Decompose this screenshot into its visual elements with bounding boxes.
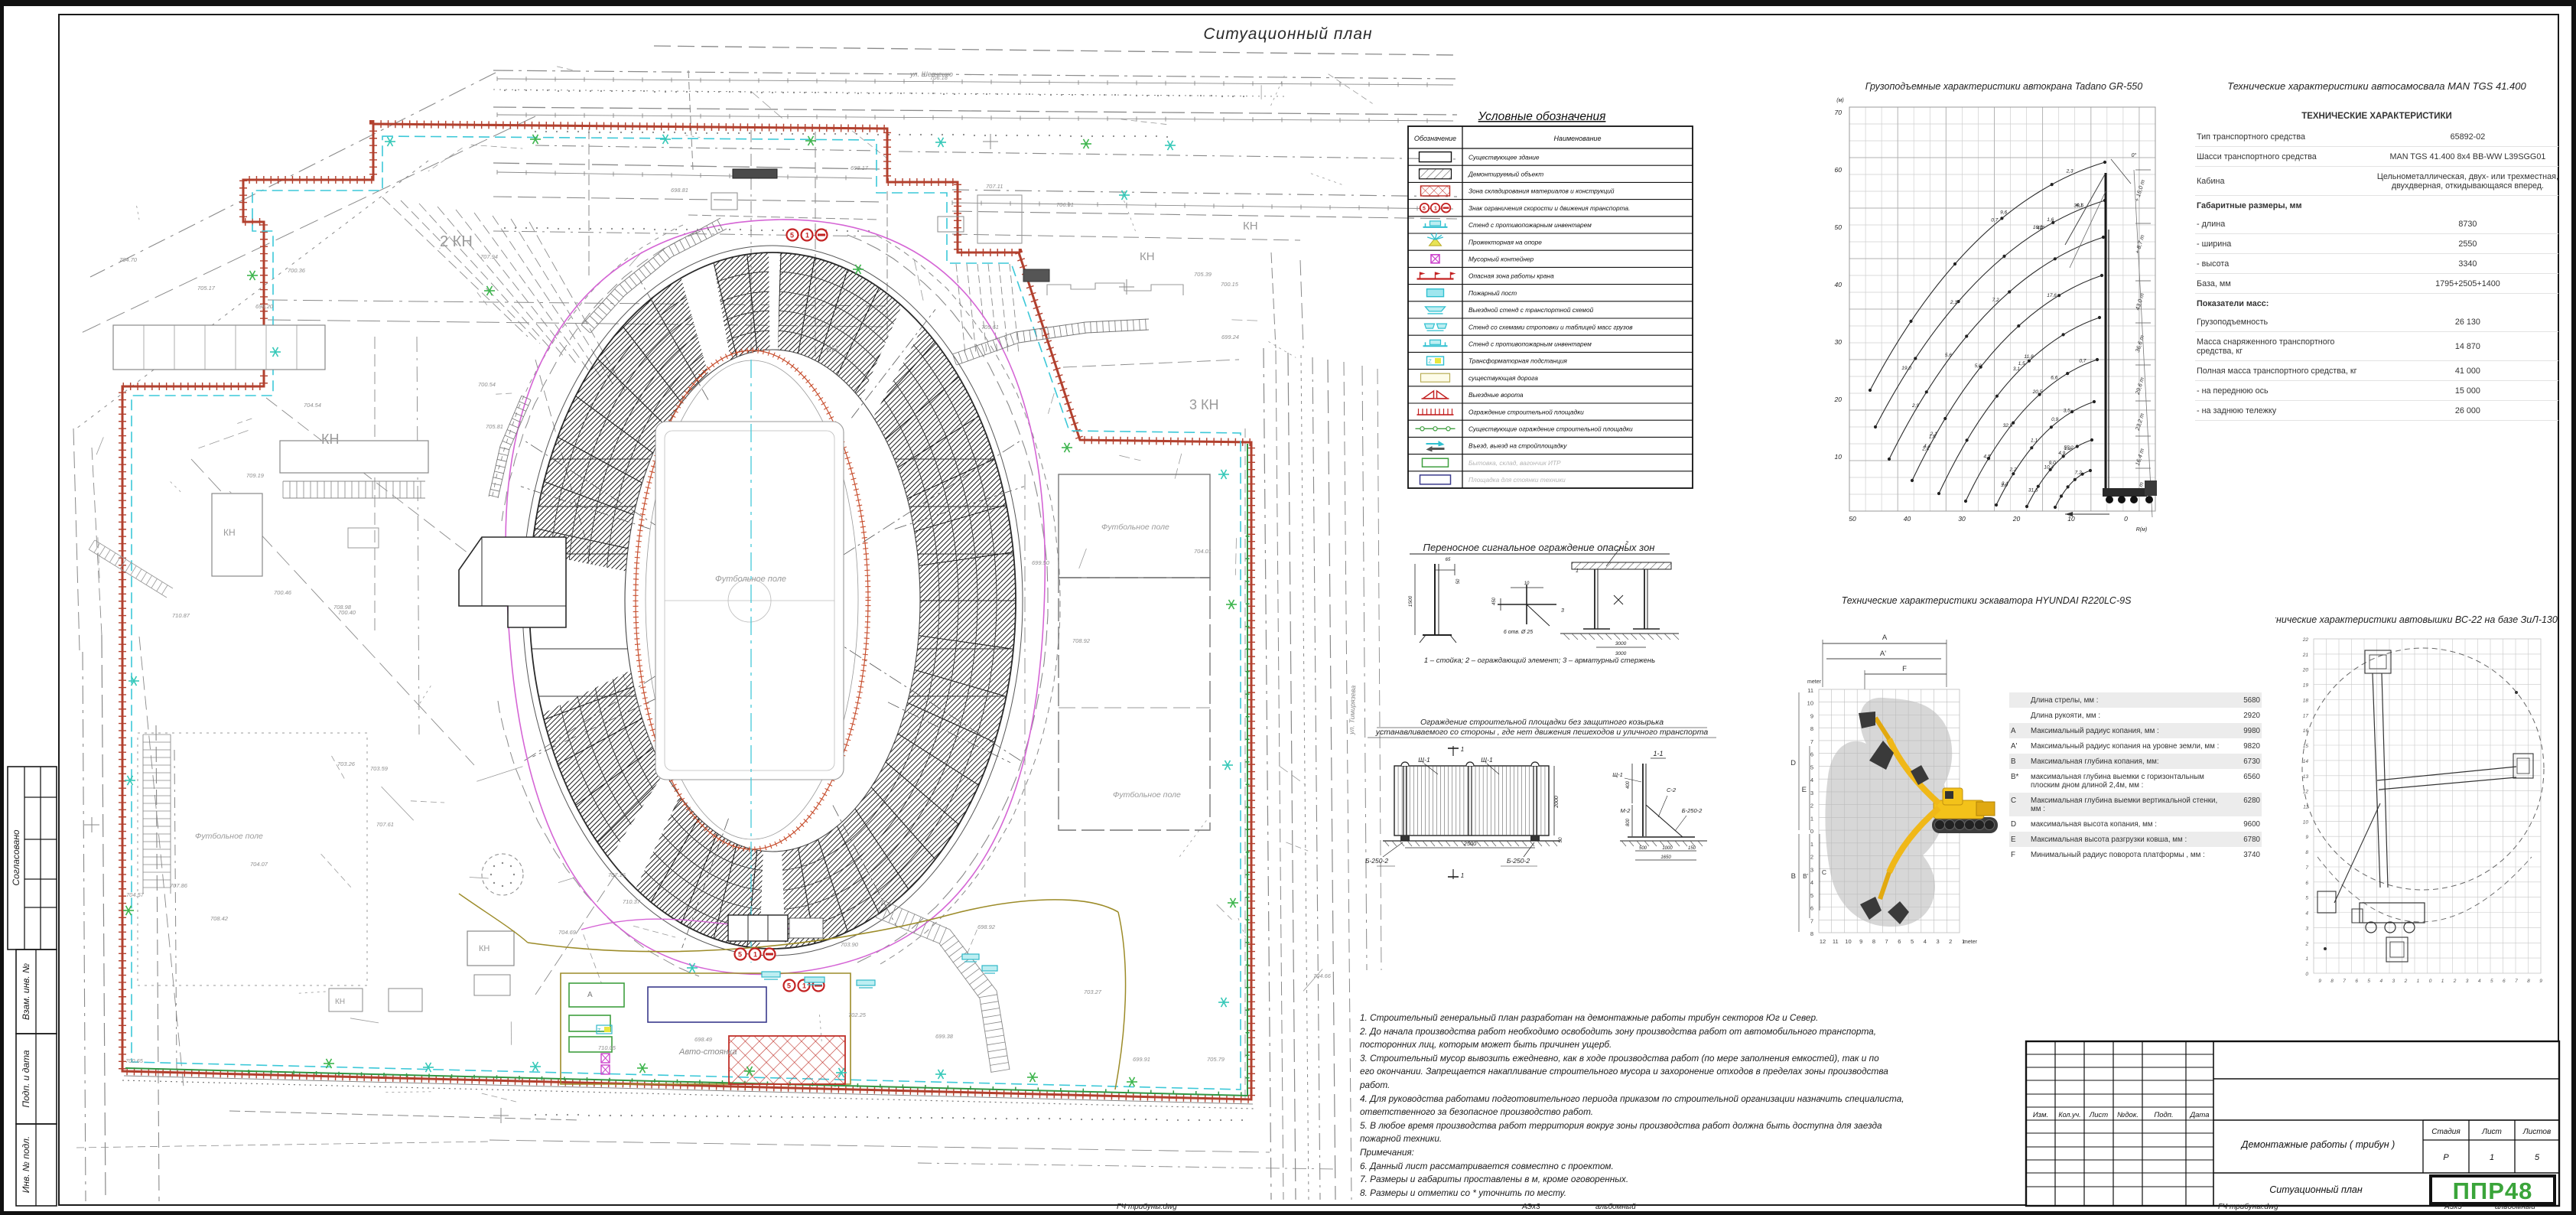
svg-text:699.91: 699.91: [1133, 1056, 1150, 1063]
svg-text:50: 50: [1456, 578, 1461, 584]
svg-text:705.17: 705.17: [197, 285, 216, 292]
svg-text:КН: КН: [335, 998, 345, 1006]
svg-text:40°: 40°: [2037, 225, 2045, 231]
svg-text:1 – стойка; 2 – ограждающий эл: 1 – стойка; 2 – ограждающий элемент; 3 –…: [1424, 656, 1655, 665]
svg-text:9: 9: [2539, 979, 2542, 984]
svg-text:Дата: Дата: [2189, 1111, 2209, 1119]
svg-text:КН: КН: [1243, 220, 1258, 233]
svg-text:708.98: 708.98: [333, 604, 352, 611]
svg-text:699.38: 699.38: [935, 1033, 954, 1040]
svg-text:М-2: М-2: [1621, 807, 1631, 814]
svg-text:C: C: [1822, 868, 1826, 876]
svg-text:3: 3: [1936, 938, 1939, 945]
svg-text:65: 65: [1446, 558, 1451, 562]
svg-text:8: 8: [1810, 930, 1813, 937]
svg-text:707.11: 707.11: [986, 183, 1003, 190]
svg-text:Знак ограничения скорости и дв: Знак ограничения скорости и движения тра…: [1469, 204, 1630, 212]
svg-text:22: 22: [2302, 637, 2309, 643]
svg-text:699.50: 699.50: [1032, 559, 1050, 566]
svg-text:Б-250-2: Б-250-2: [1507, 857, 1530, 865]
svg-text:2,9: 2,9: [1911, 403, 1919, 409]
svg-text:A': A': [1880, 650, 1886, 658]
svg-text:2 КН: 2 КН: [440, 233, 473, 250]
svg-text:703.59: 703.59: [370, 765, 389, 772]
svg-text:2: 2: [2304, 941, 2308, 946]
svg-text:Стенд с противопожарным инвент: Стенд с противопожарным инвентарем: [1469, 340, 1592, 348]
svg-text:698.49: 698.49: [694, 1036, 713, 1043]
svg-text:4,4: 4,4: [1924, 444, 1930, 449]
svg-text:11,8: 11,8: [2024, 354, 2034, 360]
svg-text:4: 4: [1924, 938, 1927, 945]
svg-text:Въезд, выезд на стройплощадку: Въезд, выезд на стройплощадку: [1469, 442, 1567, 450]
svg-text:5: 5: [1911, 938, 1914, 945]
svg-text:+ 8,7 m: + 8,7 m: [2134, 234, 2146, 255]
svg-text:7: 7: [1810, 738, 1813, 745]
svg-text:Лист: Лист: [2089, 1111, 2109, 1119]
svg-text:Прожекторная на опоре: Прожекторная на опоре: [1469, 238, 1542, 246]
svg-text:10: 10: [2067, 515, 2075, 523]
svg-text:39,5: 39,5: [2073, 204, 2083, 209]
svg-text:Переносное сигнальное огражден: Переносное сигнальное ограждение опасных…: [1423, 542, 1655, 553]
svg-text:20: 20: [2302, 668, 2309, 673]
svg-text:704.01: 704.01: [1194, 548, 1212, 555]
svg-text:20,5: 20,5: [2032, 389, 2043, 395]
svg-text:КН: КН: [479, 944, 490, 953]
svg-text:Зона складирования материалов: Зона складирования материалов и конструк…: [1469, 187, 1615, 195]
svg-text:5,0: 5,0: [1975, 363, 1982, 369]
svg-text:3: 3: [2305, 926, 2308, 931]
svg-text:500: 500: [1639, 846, 1647, 851]
svg-text:70: 70: [1835, 109, 1843, 116]
svg-text:1000: 1000: [1662, 846, 1673, 851]
svg-text:Авто-стоянка: Авто-стоянка: [678, 1047, 737, 1057]
svg-text:1: 1: [805, 232, 809, 239]
svg-text:№док.: №док.: [2117, 1111, 2139, 1119]
svg-text:1,8: 1,8: [1929, 434, 1936, 439]
svg-text:0: 0: [1810, 828, 1813, 835]
svg-text:1: 1: [1810, 815, 1813, 822]
svg-text:Наименование: Наименование: [1553, 135, 1601, 142]
svg-text:Выездной стенд с транспортной: Выездной стенд с транспортной схемой: [1469, 306, 1594, 314]
svg-text:705.79: 705.79: [1207, 1056, 1225, 1063]
svg-text:2: 2: [1949, 938, 1952, 945]
svg-text:4: 4: [2478, 979, 2481, 984]
svg-text:Ограждение строительной площад: Ограждение строительной площадки: [1469, 408, 1584, 415]
svg-text:Изм.: Изм.: [2033, 1111, 2048, 1119]
svg-text:А: А: [587, 991, 593, 999]
svg-text:30: 30: [1958, 515, 1966, 523]
svg-text:Ограждение строительной площад: Ограждение строительной площадки без защ…: [1420, 718, 1664, 727]
svg-text:3: 3: [2466, 979, 2469, 984]
svg-text:ул. Шевченко: ул. Шевченко: [909, 70, 953, 78]
svg-text:B': B': [1803, 873, 1808, 880]
svg-text:16,4 m: 16,4 m: [2134, 448, 2145, 467]
svg-text:5: 5: [2367, 979, 2370, 984]
svg-text:703.90: 703.90: [841, 941, 859, 948]
svg-text:17,6: 17,6: [2047, 293, 2057, 298]
svg-text:1500: 1500: [1408, 595, 1413, 607]
svg-text:КН: КН: [223, 527, 236, 538]
svg-text:2,2: 2,2: [2009, 467, 2017, 472]
svg-text:8: 8: [1872, 938, 1875, 945]
svg-text:0: 0: [2429, 979, 2432, 984]
svg-text:6 отв. Ø 25: 6 отв. Ø 25: [1504, 630, 1533, 635]
svg-text:19: 19: [2303, 683, 2309, 689]
svg-text:Футбольное поле: Футбольное поле: [1101, 523, 1169, 532]
svg-text:4: 4: [2305, 911, 2308, 917]
svg-text:Стенд со схемами строповки и т: Стенд со схемами строповки и таблицей ма…: [1469, 323, 1633, 331]
svg-text:5: 5: [2535, 1153, 2540, 1162]
svg-text:18: 18: [2303, 699, 2309, 704]
svg-text:400: 400: [1626, 780, 1631, 789]
svg-text:450: 450: [1492, 597, 1497, 605]
svg-text:5: 5: [790, 232, 794, 239]
svg-text:0,7: 0,7: [2079, 359, 2086, 364]
svg-text:40: 40: [1835, 281, 1843, 288]
svg-text:D: D: [1791, 759, 1796, 767]
svg-text:8: 8: [1810, 725, 1813, 732]
svg-text:709.19: 709.19: [246, 472, 265, 479]
svg-text:R(м): R(м): [2136, 527, 2148, 533]
svg-text:Условные обозначения: Условные обозначения: [1478, 110, 1606, 123]
svg-text:Демонтируемый объект: Демонтируемый объект: [1468, 171, 1543, 178]
svg-text:meter: meter: [1807, 679, 1822, 685]
svg-text:Технические характеристики авт: Технические характеристики автовышки ВС-…: [2275, 614, 2558, 625]
svg-text:5: 5: [1810, 892, 1813, 899]
svg-text:Стенд с противопожарным инвент: Стенд с противопожарным инвентарем: [1469, 221, 1592, 229]
svg-text:Щ-1: Щ-1: [1418, 756, 1430, 764]
svg-text:708.42: 708.42: [210, 915, 229, 922]
svg-text:710.87: 710.87: [172, 612, 190, 619]
svg-text:10: 10: [1807, 700, 1813, 707]
svg-text:meter: meter: [1963, 940, 1978, 945]
svg-text:704.70: 704.70: [119, 256, 138, 263]
svg-text:700.46: 700.46: [274, 589, 292, 596]
svg-text:708.92: 708.92: [1072, 637, 1091, 644]
svg-text:КН: КН: [1140, 250, 1155, 263]
svg-text:700.36: 700.36: [288, 267, 306, 274]
svg-text:2: 2: [2404, 979, 2408, 984]
svg-text:КН: КН: [826, 344, 838, 354]
svg-text:6,6: 6,6: [2051, 376, 2057, 381]
svg-text:698.20: 698.20: [255, 303, 274, 310]
svg-text:14: 14: [2303, 759, 2309, 764]
svg-text:50: 50: [1835, 223, 1843, 231]
svg-text:3,5: 3,5: [2064, 409, 2070, 414]
svg-text:5: 5: [1423, 207, 1426, 212]
svg-text:3: 3: [1810, 790, 1813, 796]
svg-text:Существующие ограждение строит: Существующие ограждение строительной пло…: [1469, 425, 1633, 433]
svg-text:2: 2: [1810, 803, 1813, 809]
svg-text:12: 12: [2303, 790, 2309, 795]
svg-text:12: 12: [1820, 938, 1826, 945]
svg-text:5,6: 5,6: [1945, 353, 1952, 358]
svg-text:F: F: [1902, 665, 1907, 673]
svg-text:3000: 3000: [1615, 641, 1627, 647]
svg-text:23,2 m: 23,2 m: [2134, 412, 2146, 432]
svg-text:9,6: 9,6: [2000, 210, 2007, 216]
svg-text:700.54: 700.54: [478, 381, 496, 388]
svg-text:Б-250-2: Б-250-2: [1365, 857, 1388, 865]
svg-text:699.24: 699.24: [1221, 334, 1239, 340]
svg-text:2000: 2000: [1554, 796, 1560, 809]
svg-text:1: 1: [1461, 872, 1464, 879]
svg-text:700.65: 700.65: [125, 1057, 144, 1064]
svg-text:Мусорный контейнер: Мусорный контейнер: [1469, 256, 1534, 263]
svg-text:B: B: [1791, 872, 1796, 881]
svg-text:0: 0: [2305, 972, 2308, 977]
svg-text:7: 7: [1810, 917, 1813, 924]
svg-text:2: 2: [2453, 979, 2457, 984]
svg-text:Щ-1: Щ-1: [1612, 771, 1623, 778]
svg-text:Лист: Лист: [2481, 1128, 2502, 1136]
svg-text:800: 800: [1626, 818, 1631, 826]
svg-text:707.94: 707.94: [480, 253, 498, 260]
svg-text:1: 1: [2417, 979, 2420, 984]
svg-text:7: 7: [2515, 979, 2518, 984]
svg-text:709.61: 709.61: [981, 324, 999, 331]
svg-text:6: 6: [2305, 881, 2308, 886]
svg-text:Существующее здание: Существующее здание: [1469, 153, 1540, 161]
svg-text:4: 4: [2379, 979, 2382, 984]
svg-text:существующая дорога: существующая дорога: [1469, 374, 1538, 382]
svg-text:20: 20: [1834, 396, 1843, 403]
svg-text:6: 6: [1810, 905, 1813, 912]
svg-text:10: 10: [2303, 819, 2309, 825]
svg-text:Подп.: Подп.: [2154, 1111, 2173, 1119]
svg-text:1,1: 1,1: [2031, 438, 2038, 443]
svg-text:6: 6: [1898, 938, 1901, 945]
svg-text:Р: Р: [2443, 1153, 2449, 1162]
svg-text:Демонтажные работы ( трибун ): Демонтажные работы ( трибун ): [2240, 1139, 2395, 1150]
svg-text:704.54: 704.54: [304, 402, 321, 409]
svg-text:31,5: 31,5: [2028, 488, 2038, 493]
svg-text:60: 60: [1835, 166, 1843, 174]
svg-text:2: 2: [1810, 854, 1813, 861]
svg-text:10: 10: [1524, 581, 1530, 586]
svg-text:9: 9: [2318, 979, 2321, 984]
svg-text:1,6: 1,6: [2047, 217, 2054, 223]
svg-text:50: 50: [1558, 837, 1563, 843]
svg-text:3: 3: [1810, 866, 1813, 873]
svg-text:1: 1: [753, 951, 757, 959]
svg-text:10: 10: [1845, 938, 1851, 945]
svg-text:1: 1: [1810, 841, 1813, 848]
svg-text:Технические характеристики эск: Технические характеристики эскаватора HY…: [1842, 595, 2132, 606]
svg-text:707.16: 707.16: [608, 871, 626, 878]
svg-text:2: 2: [1625, 541, 1628, 546]
svg-text:9,0: 9,0: [2049, 461, 2056, 466]
svg-text:устанавливаемого со стороны ,: устанавливаемого со стороны , где нет дв…: [1375, 728, 1709, 737]
svg-text:Грузоподъемные характеристики: Грузоподъемные характеристики автокрана …: [1865, 81, 2142, 92]
svg-text:707.61: 707.61: [376, 821, 394, 828]
svg-text:703.26: 703.26: [337, 761, 356, 767]
svg-text:9: 9: [1810, 712, 1813, 719]
svg-text:11: 11: [1833, 938, 1839, 945]
svg-text:698.92: 698.92: [977, 923, 996, 930]
svg-text:7: 7: [2305, 865, 2308, 871]
svg-text:8: 8: [2330, 979, 2334, 984]
svg-text:30: 30: [1835, 338, 1843, 346]
svg-text:4: 4: [1810, 777, 1813, 783]
svg-text:150: 150: [1688, 846, 1696, 851]
svg-text:703.27: 703.27: [1084, 989, 1102, 995]
svg-text:Стадия: Стадия: [2431, 1128, 2461, 1136]
svg-text:7: 7: [1885, 938, 1888, 945]
svg-text:698.17: 698.17: [851, 164, 869, 171]
svg-text:705.39: 705.39: [1194, 271, 1212, 278]
svg-text:Выездные ворота: Выездные ворота: [1469, 391, 1524, 399]
svg-text:704.66: 704.66: [1313, 972, 1332, 979]
svg-text:2500: 2500: [1463, 840, 1478, 847]
svg-text:43,0 m: 43,0 m: [2134, 292, 2145, 311]
svg-text:1: 1: [1434, 207, 1437, 212]
svg-text:Обозначение: Обозначение: [1414, 135, 1456, 142]
svg-text:7,2: 7,2: [2075, 470, 2082, 475]
svg-text:Футбольное поле: Футбольное поле: [195, 832, 263, 841]
svg-text:(м): (м): [1836, 98, 1843, 103]
svg-text:Трансформаторная подстанция: Трансформаторная подстанция: [1469, 357, 1567, 365]
svg-text:55,2: 55,2: [2064, 445, 2073, 451]
svg-text:36,6 m: 36,6 m: [2134, 334, 2145, 353]
svg-text:6: 6: [2355, 979, 2358, 984]
svg-text:1: 1: [2305, 956, 2308, 962]
svg-text:3,0: 3,0: [2001, 483, 2008, 488]
svg-text:Пожарный пост: Пожарный пост: [1469, 289, 1517, 297]
svg-text:11: 11: [1807, 687, 1813, 694]
svg-text:702.25: 702.25: [848, 1011, 867, 1018]
svg-text:4,9: 4,9: [2058, 451, 2065, 456]
svg-text:E: E: [1802, 786, 1807, 794]
svg-text:1: 1: [1576, 568, 1579, 574]
svg-text:1650: 1650: [1660, 855, 1671, 860]
svg-text:3,1: 3,1: [2013, 366, 2020, 372]
svg-text:0: 0: [2124, 515, 2128, 523]
svg-text:5: 5: [738, 951, 742, 959]
svg-text:8: 8: [2527, 979, 2530, 984]
svg-text:6: 6: [1810, 751, 1813, 758]
svg-text:5: 5: [1810, 764, 1813, 770]
svg-text:20: 20: [2012, 515, 2021, 523]
svg-text:2,1: 2,1: [1950, 300, 1957, 305]
svg-text:7,2: 7,2: [1992, 298, 1999, 303]
svg-text:КН: КН: [321, 432, 339, 447]
svg-text:С-2: С-2: [1667, 787, 1677, 793]
svg-text:Ситуационный план: Ситуационный план: [2269, 1184, 2363, 1195]
svg-text:3: 3: [1561, 608, 1564, 614]
svg-text:700.15: 700.15: [1221, 281, 1239, 288]
svg-text:0°: 0°: [2132, 152, 2137, 158]
svg-text:5: 5: [2305, 896, 2308, 901]
svg-text:710.37: 710.37: [623, 898, 641, 905]
svg-text:1: 1: [802, 982, 806, 990]
svg-text:0,7: 0,7: [1991, 218, 1998, 223]
svg-text:9: 9: [2305, 835, 2308, 840]
svg-text:A: A: [1882, 634, 1888, 642]
svg-text:707.86: 707.86: [170, 882, 188, 889]
svg-text:710.05: 710.05: [598, 1044, 616, 1051]
svg-text:Кол.уч.: Кол.уч.: [2058, 1111, 2080, 1119]
svg-text:1-1: 1-1: [1653, 750, 1663, 757]
svg-text:ул. Тимирязева: ул. Тимирязева: [1348, 686, 1357, 735]
svg-text:704.69: 704.69: [558, 929, 577, 936]
svg-text:6: 6: [2503, 979, 2506, 984]
svg-text:1: 1: [1461, 746, 1464, 753]
svg-text:21: 21: [2302, 653, 2309, 658]
svg-text:13: 13: [2303, 774, 2309, 780]
svg-text:Листов: Листов: [2522, 1128, 2551, 1136]
svg-text:0,9: 0,9: [2051, 417, 2058, 422]
svg-text:17: 17: [2303, 713, 2309, 718]
svg-text:3 КН: 3 КН: [1189, 397, 1219, 412]
svg-text:Опасная зона работы крана: Опасная зона работы крана: [1469, 272, 1554, 280]
svg-text:706.91: 706.91: [1056, 201, 1074, 208]
svg-text:5: 5: [787, 982, 791, 990]
svg-text:Z: Z: [1429, 360, 1433, 365]
svg-text:4,5: 4,5: [1983, 454, 1990, 459]
svg-text:704.57: 704.57: [126, 891, 145, 898]
svg-text:3000: 3000: [1615, 651, 1627, 656]
svg-text:Щ-1: Щ-1: [1481, 756, 1493, 764]
svg-text:1: 1: [2490, 1153, 2494, 1162]
svg-text:1: 1: [2441, 979, 2444, 984]
svg-text:704.07: 704.07: [250, 861, 268, 868]
svg-text:10: 10: [1835, 453, 1843, 461]
svg-text:9: 9: [1859, 938, 1862, 945]
svg-text:Площадка для стоянки техники: Площадка для стоянки техники: [1469, 476, 1566, 484]
svg-text:Бытовка, склад, вагончик ИТР: Бытовка, склад, вагончик ИТР: [1469, 459, 1561, 467]
svg-text:698.81: 698.81: [671, 187, 688, 194]
svg-text:50: 50: [1849, 515, 1856, 523]
svg-text:Б-250-2: Б-250-2: [1682, 807, 1703, 814]
svg-text:15: 15: [2303, 744, 2309, 749]
svg-text:Футбольное поле: Футбольное поле: [1113, 790, 1181, 800]
svg-text:Z: Z: [597, 1028, 601, 1034]
svg-text:705.81: 705.81: [486, 423, 503, 430]
svg-text:32,5: 32,5: [2003, 423, 2013, 428]
svg-text:8: 8: [2305, 850, 2308, 855]
svg-text:19,0: 19,0: [1901, 366, 1911, 371]
svg-text:40: 40: [1904, 515, 1911, 523]
svg-text:7: 7: [2343, 979, 2346, 984]
svg-text:ППР48: ППР48: [2453, 1178, 2533, 1204]
svg-text:3: 3: [2392, 979, 2395, 984]
svg-text:5: 5: [2490, 979, 2493, 984]
svg-text:4: 4: [1810, 879, 1813, 886]
svg-text:2,3: 2,3: [2066, 168, 2073, 174]
